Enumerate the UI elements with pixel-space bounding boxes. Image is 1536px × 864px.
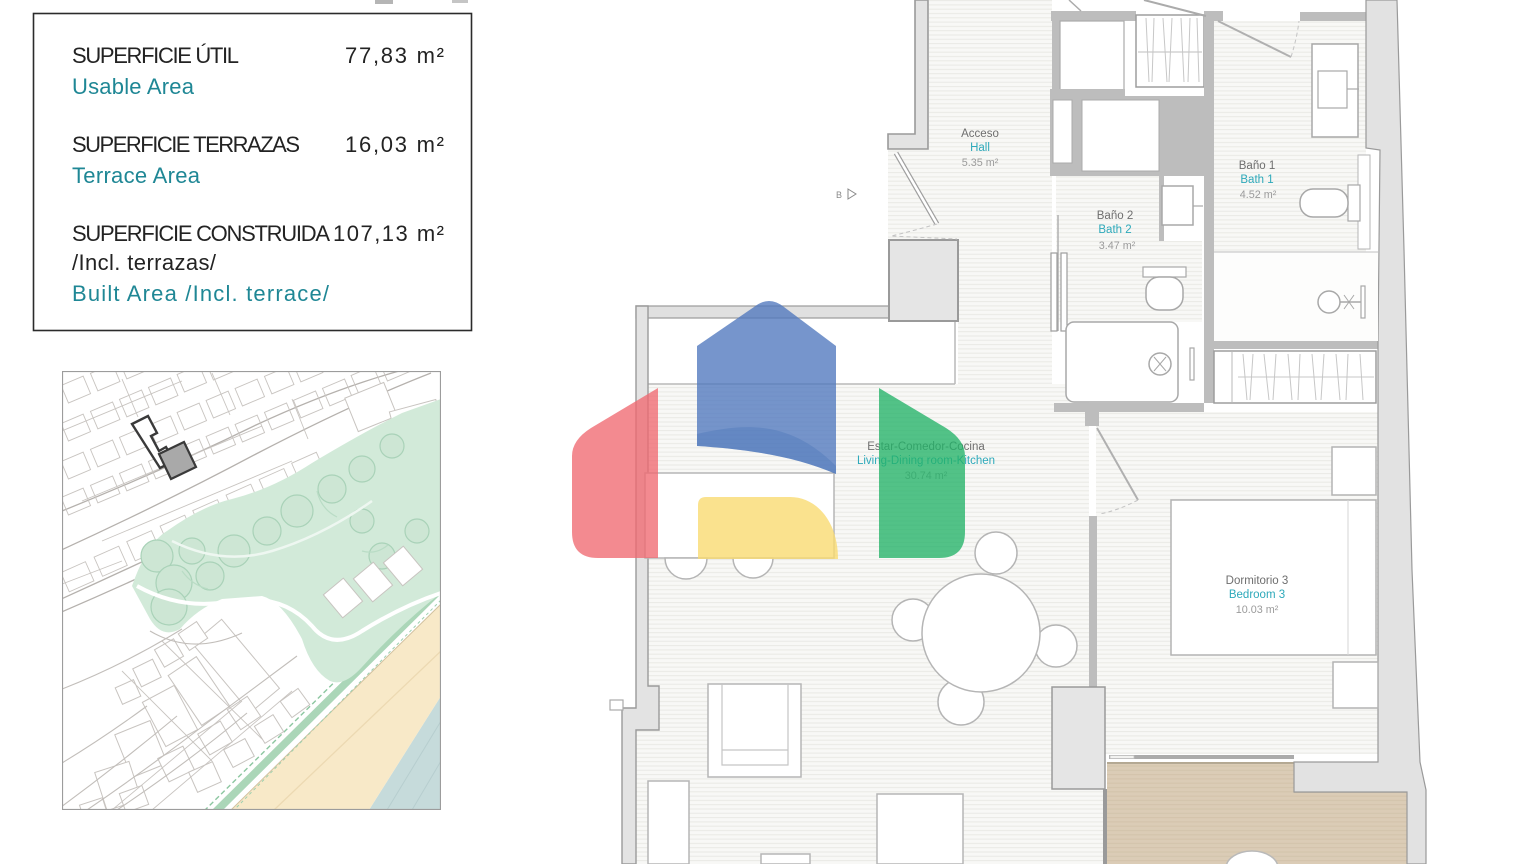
svg-text:16,03 m²: 16,03 m² [345, 132, 444, 157]
svg-text:SUPERFICIE CONSTRUIDA: SUPERFICIE CONSTRUIDA [72, 221, 330, 246]
svg-text:Bedroom 3: Bedroom 3 [1229, 589, 1285, 601]
svg-text:Usable Area: Usable Area [72, 74, 195, 99]
svg-text:Built Area /Incl. terrace/: Built Area /Incl. terrace/ [72, 281, 330, 306]
svg-text:10.03 m²: 10.03 m² [1236, 604, 1279, 616]
svg-text:/Incl. terrazas/: /Incl. terrazas/ [72, 250, 217, 275]
svg-text:Acceso: Acceso [961, 128, 999, 140]
svg-text:Baño 2: Baño 2 [1097, 210, 1133, 222]
svg-text:Dormitorio 3: Dormitorio 3 [1226, 575, 1289, 587]
svg-text:Baño 1: Baño 1 [1239, 160, 1275, 172]
svg-text:Bath 1: Bath 1 [1240, 174, 1273, 186]
svg-text:Bath 2: Bath 2 [1098, 224, 1131, 236]
svg-text:Terrace Area: Terrace Area [72, 163, 201, 188]
svg-text:4.52 m²: 4.52 m² [1240, 189, 1277, 201]
svg-text:SUPERFICIE ÚTIL: SUPERFICIE ÚTIL [72, 43, 239, 68]
svg-text:SUPERFICIE TERRAZAS: SUPERFICIE TERRAZAS [72, 132, 300, 157]
svg-text:107,13 m²: 107,13 m² [333, 221, 444, 246]
svg-text:B: B [836, 190, 842, 200]
svg-text:5.35 m²: 5.35 m² [962, 157, 999, 169]
svg-text:Hall: Hall [970, 142, 990, 154]
svg-text:77,83 m²: 77,83 m² [345, 43, 444, 68]
svg-text:3.47 m²: 3.47 m² [1099, 240, 1136, 252]
